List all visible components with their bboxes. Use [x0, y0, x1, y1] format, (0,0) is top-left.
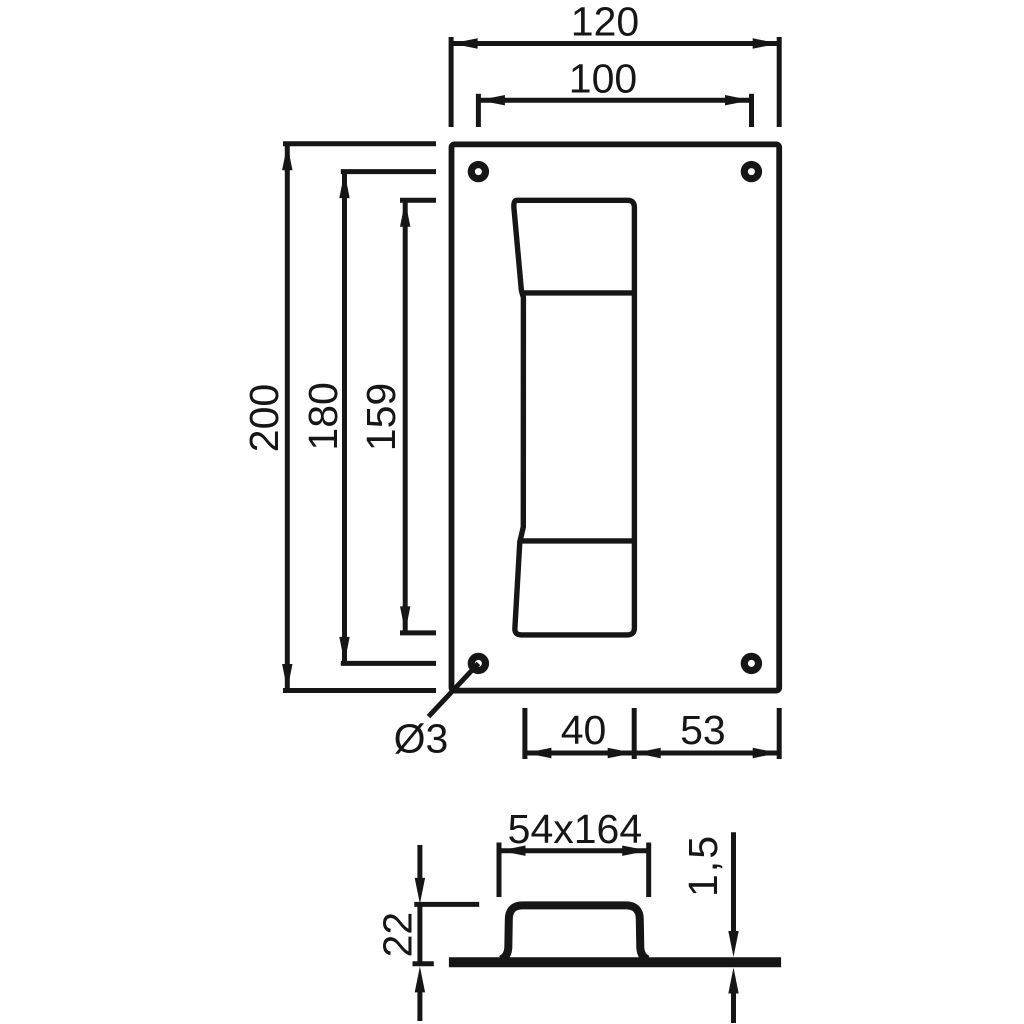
- svg-text:120: 120: [571, 0, 639, 45]
- svg-text:54x164: 54x164: [508, 806, 643, 852]
- svg-text:100: 100: [569, 55, 637, 101]
- svg-text:200: 200: [241, 384, 287, 452]
- svg-text:180: 180: [300, 382, 346, 450]
- svg-text:159: 159: [358, 383, 404, 451]
- svg-text:22: 22: [374, 912, 420, 958]
- svg-text:1,5: 1,5: [680, 834, 726, 897]
- svg-text:40: 40: [561, 707, 607, 753]
- svg-text:Ø3: Ø3: [394, 716, 449, 762]
- svg-text:53: 53: [680, 707, 726, 753]
